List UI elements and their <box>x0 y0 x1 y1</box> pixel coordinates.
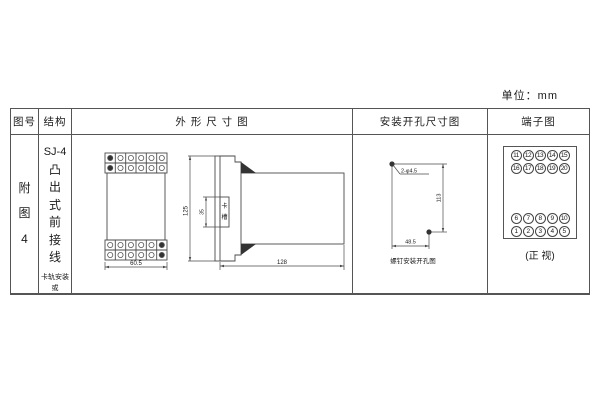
terminal-9: 9 <box>547 213 558 224</box>
terminal-row: 678910 <box>504 213 576 226</box>
model-label: SJ-4 <box>44 146 67 158</box>
terminal-3: 3 <box>535 226 546 237</box>
terminal-5: 5 <box>559 226 570 237</box>
side-view <box>215 156 344 261</box>
structure-type-label: 凸出式前接线 <box>48 162 62 266</box>
terminal-caption: (正 视) <box>495 247 585 262</box>
side-height-dimension <box>188 156 215 261</box>
side-height-label: 125 <box>184 205 190 216</box>
mounting-hole-drawing: 2-φ4.5 113 48.5 螺钉安装开孔图 <box>353 135 488 293</box>
header-structure: 结构 <box>39 109 72 135</box>
slot-dimension <box>203 197 220 227</box>
fig-no-cell: 附图4 <box>11 135 39 293</box>
side-depth-dimension <box>220 245 344 270</box>
terminal-18: 18 <box>535 163 546 174</box>
terminal-4: 4 <box>547 226 558 237</box>
terminal-16: 16 <box>511 163 522 174</box>
slot-dim-label: 35 <box>200 209 206 215</box>
terminal-row: 1112131415 <box>504 150 576 163</box>
spec-table: 图号 结构 外 形 尺 寸 图 安装开孔尺寸图 端子图 附图4 SJ-4 凸出式… <box>10 108 590 295</box>
front-view <box>105 153 167 260</box>
outline-drawing-cell: 60.5 125 <box>72 135 353 293</box>
mounting-hole-bottom <box>426 229 431 234</box>
terminal-15: 15 <box>559 150 570 161</box>
terminal-13: 13 <box>535 150 546 161</box>
unit-label: 单位：mm <box>502 87 558 103</box>
side-depth-label: 128 <box>277 260 288 266</box>
slot-label-char-1: 卡 <box>221 202 227 210</box>
header-outline: 外 形 尺 寸 图 <box>72 109 353 135</box>
terminal-17: 17 <box>523 163 534 174</box>
front-width-label: 60.5 <box>130 261 142 267</box>
slot-label-char-2: 槽 <box>221 213 227 221</box>
terminal-6: 6 <box>511 213 522 224</box>
terminal-1: 1 <box>511 226 522 237</box>
mounting-note: 卡轨安装 或 螺钉安装 <box>41 273 69 293</box>
terminal-14: 14 <box>547 150 558 161</box>
mounting-height-label: 113 <box>437 194 443 203</box>
terminal-diagram-cell: 1112131415161718192067891012345 (正 视) <box>488 135 589 293</box>
mounting-construction-lines <box>392 164 447 249</box>
header-terminal: 端子图 <box>488 109 589 135</box>
terminal-12: 12 <box>523 150 534 161</box>
terminal-2: 2 <box>523 226 534 237</box>
mounting-width-label: 48.5 <box>405 240 416 246</box>
header-mounting: 安装开孔尺寸图 <box>353 109 488 135</box>
terminal-10: 10 <box>559 213 570 224</box>
terminal-row: 1617181920 <box>504 163 576 176</box>
terminal-grid: 1112131415161718192067891012345 <box>503 146 577 239</box>
terminal-8: 8 <box>535 213 546 224</box>
fig-no-text: 附图4 <box>18 176 32 252</box>
outline-drawing: 60.5 125 <box>72 135 353 293</box>
hole-callout-label: 2-φ4.5 <box>401 169 417 175</box>
top-latch <box>241 162 256 173</box>
terminal-19: 19 <box>547 163 558 174</box>
terminal-11: 11 <box>511 150 522 161</box>
header-fig-no: 图号 <box>11 109 39 135</box>
terminal-7: 7 <box>523 213 534 224</box>
mounting-caption: 螺钉安装开孔图 <box>390 256 436 265</box>
terminal-20: 20 <box>559 163 570 174</box>
bottom-latch <box>241 244 256 255</box>
terminal-row: 12345 <box>504 226 576 239</box>
structure-cell: SJ-4 凸出式前接线 卡轨安装 或 螺钉安装 <box>39 135 72 293</box>
mounting-drawing-cell: 2-φ4.5 113 48.5 螺钉安装开孔图 <box>353 135 488 293</box>
